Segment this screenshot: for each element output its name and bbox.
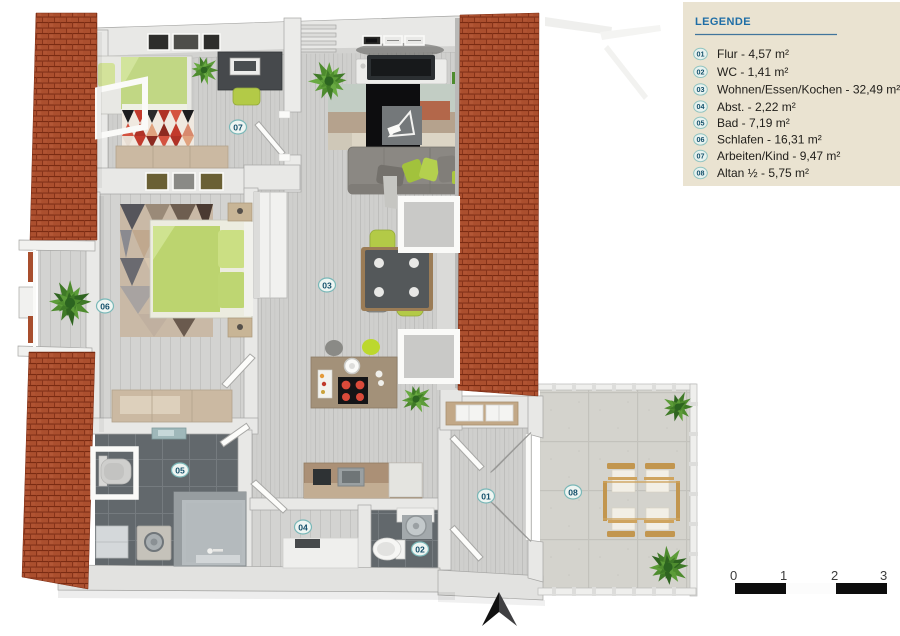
svg-text:Wohnen/Essen/Kochen - 32,49 m²: Wohnen/Essen/Kochen - 32,49 m² (717, 83, 900, 97)
svg-text:03: 03 (697, 85, 705, 94)
svg-text:04: 04 (298, 523, 308, 533)
svg-text:03: 03 (322, 281, 332, 291)
svg-text:Flur - 4,57 m²: Flur - 4,57 m² (717, 47, 789, 61)
svg-text:01: 01 (481, 492, 491, 502)
svg-text:07: 07 (697, 152, 705, 161)
svg-text:02: 02 (415, 545, 425, 555)
svg-text:06: 06 (100, 302, 110, 312)
svg-text:02: 02 (697, 67, 705, 76)
svg-text:0: 0 (730, 568, 737, 583)
svg-text:04: 04 (697, 102, 705, 111)
svg-text:Altan ½ - 5,75 m²: Altan ½ - 5,75 m² (717, 166, 809, 180)
svg-text:05: 05 (175, 466, 185, 476)
svg-text:07: 07 (233, 123, 243, 133)
svg-text:Abst. - 2,22 m²: Abst. - 2,22 m² (717, 100, 796, 114)
svg-text:Arbeiten/Kind - 9,47 m²: Arbeiten/Kind - 9,47 m² (717, 149, 840, 163)
svg-text:08: 08 (697, 169, 705, 178)
svg-text:WC - 1,41 m²: WC - 1,41 m² (717, 65, 788, 79)
svg-text:06: 06 (697, 135, 705, 144)
svg-text:1: 1 (780, 568, 787, 583)
svg-text:01: 01 (697, 50, 705, 59)
svg-text:08: 08 (568, 488, 578, 498)
svg-text:LEGENDE: LEGENDE (695, 16, 751, 28)
svg-text:Schlafen - 16,31 m²: Schlafen - 16,31 m² (717, 133, 822, 147)
svg-text:Bad - 7,19 m²: Bad - 7,19 m² (717, 116, 790, 130)
svg-text:05: 05 (697, 118, 705, 127)
svg-text:3: 3 (880, 568, 887, 583)
svg-text:2: 2 (831, 568, 838, 583)
